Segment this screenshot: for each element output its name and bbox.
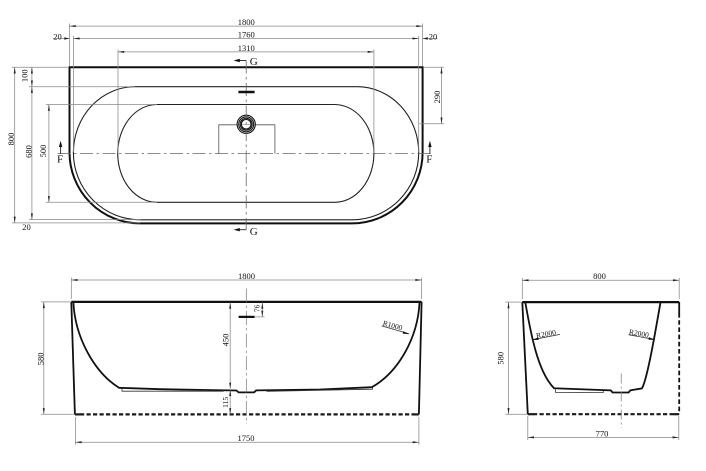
- svg-text:G: G: [250, 56, 258, 68]
- svg-text:500: 500: [38, 145, 48, 158]
- svg-text:100: 100: [19, 69, 29, 82]
- svg-text:580: 580: [495, 352, 505, 365]
- svg-text:R2000: R2000: [628, 327, 650, 339]
- svg-text:290: 290: [432, 91, 442, 104]
- svg-text:20: 20: [429, 31, 438, 41]
- svg-text:F: F: [426, 154, 432, 166]
- svg-text:1750: 1750: [238, 433, 255, 443]
- svg-text:R2000: R2000: [535, 328, 557, 341]
- svg-text:1800: 1800: [238, 271, 255, 281]
- svg-text:1310: 1310: [238, 43, 255, 53]
- svg-text:20: 20: [53, 31, 62, 41]
- svg-text:580: 580: [36, 353, 46, 366]
- svg-text:770: 770: [596, 429, 609, 439]
- svg-text:F: F: [57, 154, 63, 166]
- svg-text:800: 800: [6, 133, 16, 146]
- svg-text:800: 800: [593, 271, 606, 281]
- svg-text:450: 450: [221, 334, 231, 347]
- svg-text:115: 115: [221, 397, 230, 408]
- svg-text:20: 20: [22, 222, 31, 232]
- svg-text:R1000: R1000: [382, 319, 404, 333]
- svg-text:G: G: [250, 226, 258, 238]
- svg-text:1800: 1800: [238, 17, 255, 27]
- svg-text:1760: 1760: [238, 29, 255, 39]
- svg-text:680: 680: [24, 145, 34, 158]
- svg-text:76: 76: [252, 304, 261, 312]
